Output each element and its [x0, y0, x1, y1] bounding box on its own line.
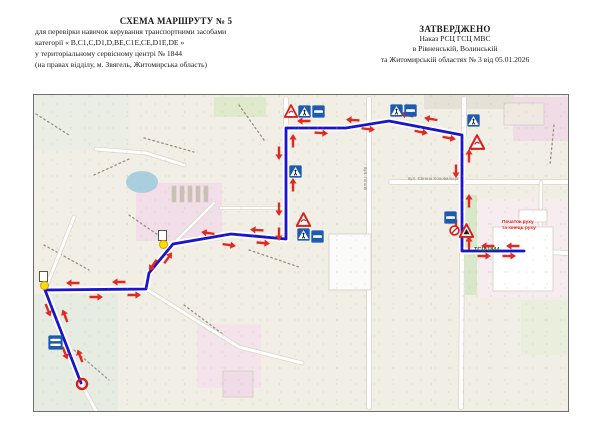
pedestrian-crossing-sign: [298, 105, 311, 118]
traffic-light-dot: [40, 281, 49, 290]
map-text-label: ТСЦ 1844: [474, 247, 500, 253]
scheme-subtitle-line: (на правах відділу, м. Звягель, Житомирс…: [35, 60, 317, 71]
warning-triangle-sign: [296, 212, 311, 227]
map-text-label: вул. Євгена Коновальця: [408, 177, 458, 182]
route-scheme-document: { "header": { "left": { "title": "СХЕМА …: [0, 0, 600, 424]
approval-line: в Рівненській, Волинській: [332, 44, 578, 54]
traffic-light-dot: [159, 240, 168, 249]
speed-bump-sign: [311, 230, 324, 243]
approval-line: та Житомирській областях № 3 від 05.01.2…: [332, 55, 578, 65]
map-overlay: Початок рухута кінець рухуТСЦ 1844вул. Г…: [34, 95, 568, 411]
warning-triangle-dark-sign: [459, 223, 474, 238]
map-text-label: Початок руху: [502, 220, 534, 225]
scheme-title: СХЕМА МАРШРУТУ № 5: [35, 16, 317, 26]
map-text-label: вул. Гоголя: [363, 167, 368, 190]
pedestrian-crossing-sign: [297, 228, 310, 241]
double-bar-sign: [48, 335, 63, 350]
warning-triangle-sign: [284, 104, 298, 118]
approval-title: ЗАТВЕРДЖЕНО: [332, 24, 578, 34]
pedestrian-crossing-sign: [289, 165, 302, 178]
pedestrian-crossing-sign: [467, 114, 480, 127]
approval-block: ЗАТВЕРДЖЕНО Наказ РСЦ ГСЦ МВС в Рівненсь…: [332, 24, 578, 65]
approval-line: Наказ РСЦ ГСЦ МВС: [332, 34, 578, 44]
map-text-label: та кінець руху: [502, 226, 536, 231]
route-map: Початок рухута кінець рухуТСЦ 1844вул. Г…: [33, 94, 569, 412]
scheme-subtitle-line: категорії « В,С1,С,D1,D,ВЕ,С1Е,СЕ,D1Е,DЕ…: [35, 38, 317, 49]
speed-bump-sign: [444, 211, 457, 224]
scheme-subtitle-line: для перевірки навичок керування транспор…: [35, 27, 317, 38]
scheme-subtitle-line: у територіальному сервісному центрі № 18…: [35, 49, 317, 60]
warning-triangle-sign: [469, 134, 485, 150]
scheme-title-block: СХЕМА МАРШРУТУ № 5 для перевірки навичок…: [35, 16, 317, 70]
speed-bump-sign: [404, 104, 417, 117]
pedestrian-crossing-sign: [390, 104, 403, 117]
speed-bump-sign: [312, 105, 325, 118]
